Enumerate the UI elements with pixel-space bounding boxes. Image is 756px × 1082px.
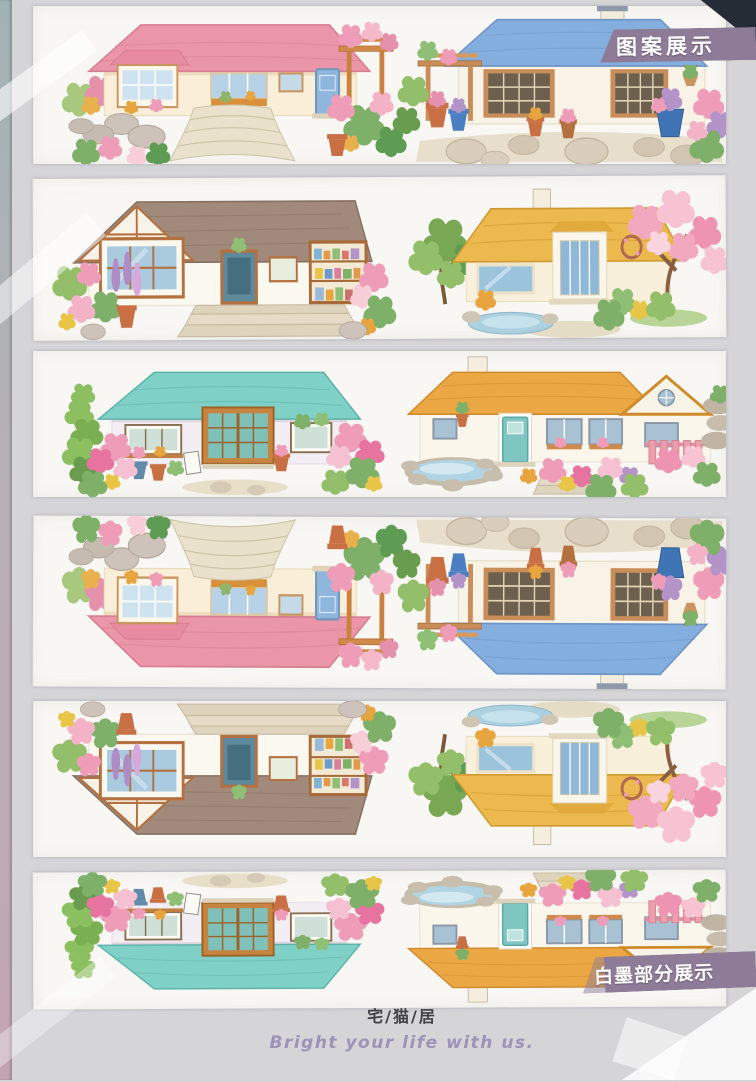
house-scene-pink-and-blue-roof-flipped — [33, 515, 727, 689]
tape-strip-2 — [33, 175, 727, 341]
tape-strip-4-flipped — [33, 515, 727, 689]
house-scene-brown-and-yellow-roof-flipped — [33, 701, 726, 857]
footer: 宅/猫/居 Bright your life with us. — [24, 1003, 756, 1053]
product-showcase-page: { "page": { "title_badge": "图案展示", "bott… — [0, 0, 756, 1080]
white-ink-display-badge: 白墨部分展示 — [581, 951, 756, 994]
pattern-display-badge: 图案展示 — [600, 27, 756, 63]
tape-strip-5-flipped — [33, 701, 726, 857]
photo-backdrop-edge — [0, 0, 12, 1080]
house-scene-brown-and-yellow-roof — [33, 175, 727, 341]
house-scene-teal-and-orange-roof — [33, 351, 726, 497]
white-ink-display-badge-label: 白墨部分展示 — [594, 957, 715, 989]
pattern-display-badge-label: 图案展示 — [616, 29, 717, 61]
tape-strip-3 — [33, 351, 726, 497]
brand-name: 宅/猫/居 — [24, 1003, 756, 1027]
brand-slogan: Bright your life with us. — [24, 1033, 756, 1053]
